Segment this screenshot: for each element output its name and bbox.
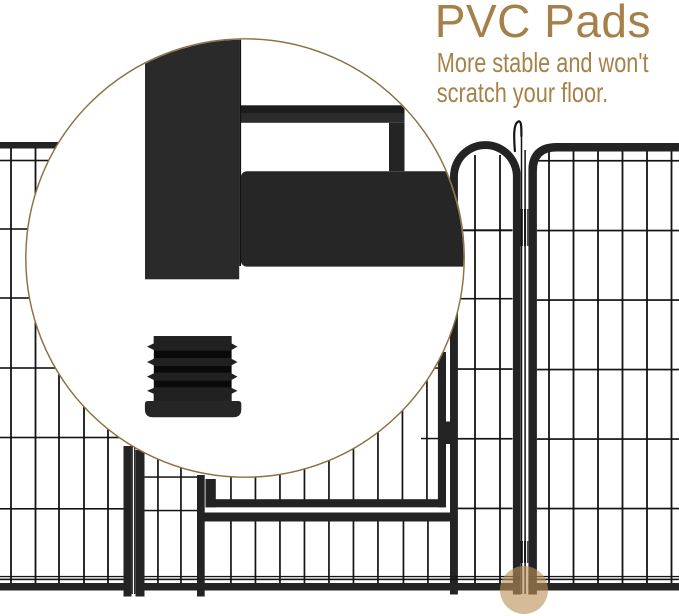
svg-text:scratch your floor.: scratch your floor. [437,79,608,109]
svg-text:PVC Pads: PVC Pads [435,0,651,47]
svg-text:More stable and won't: More stable and won't [437,49,649,79]
